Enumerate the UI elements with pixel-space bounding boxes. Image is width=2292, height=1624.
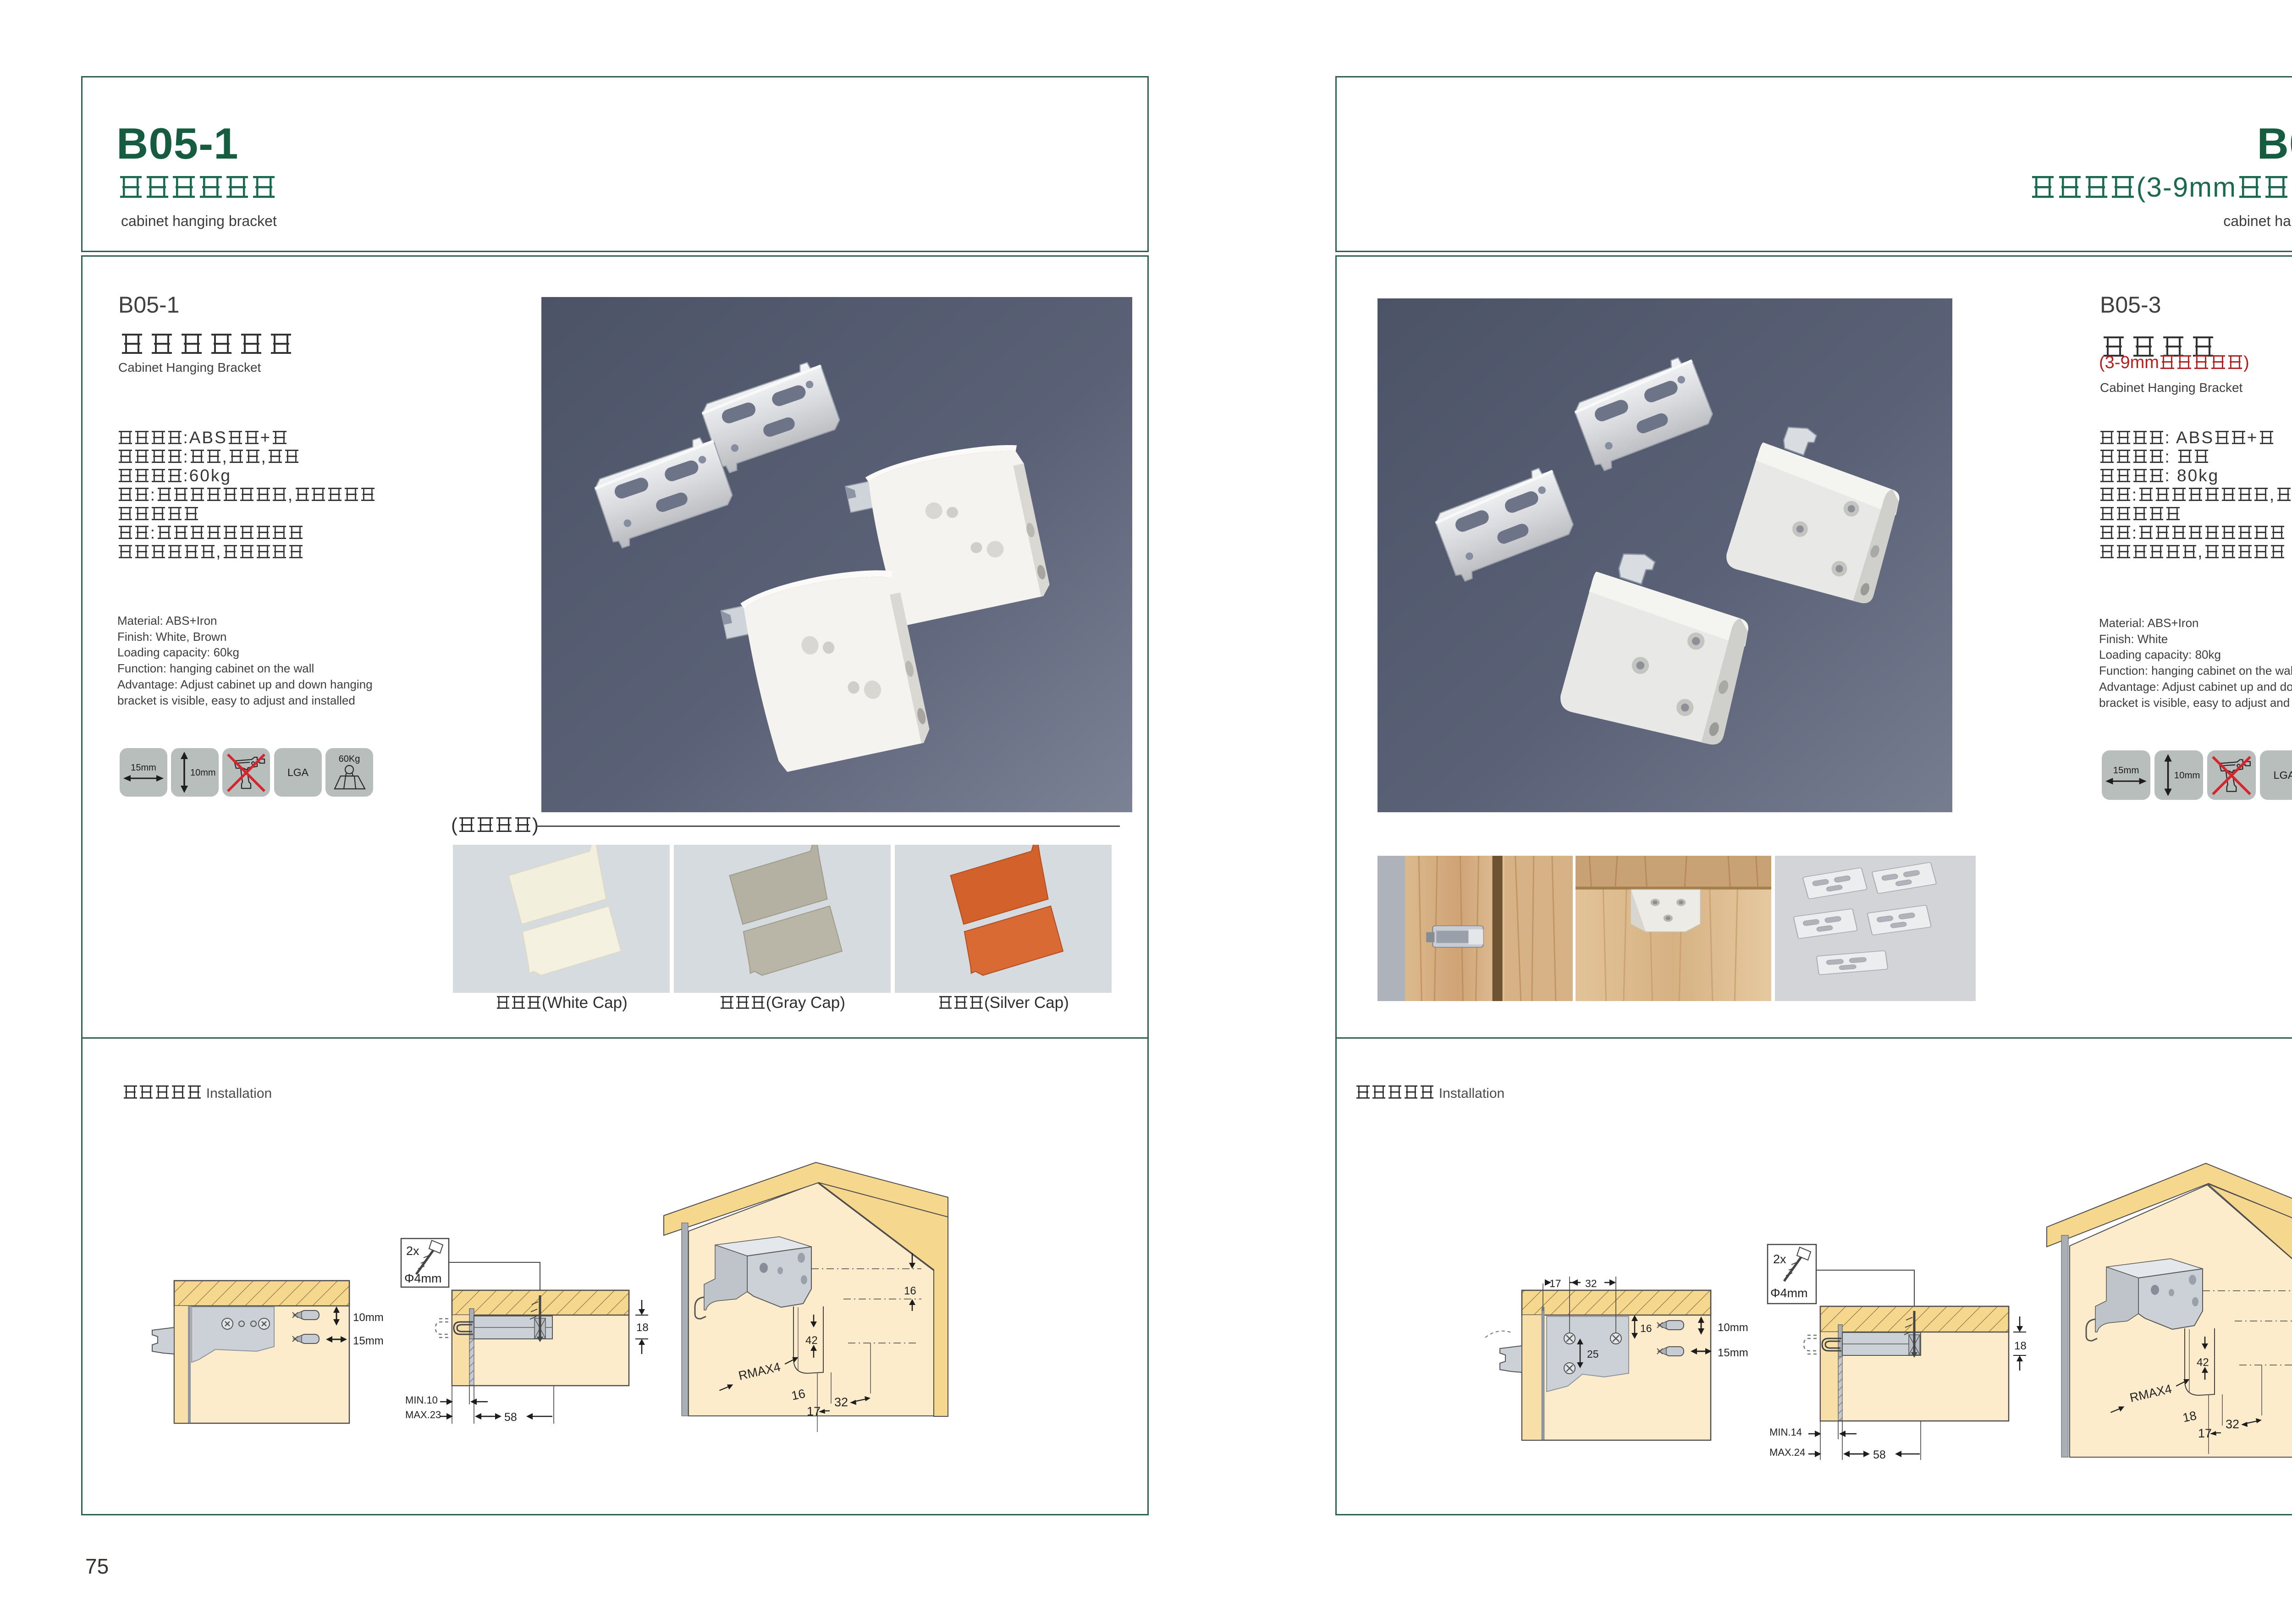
svg-text:LGA: LGA [287,766,309,778]
svg-text:15mm: 15mm [131,763,156,773]
svg-text:10mm: 10mm [1718,1321,1748,1334]
svg-text:MAX.23: MAX.23 [405,1409,441,1420]
svg-text:16: 16 [1640,1322,1652,1334]
svg-text:15mm: 15mm [353,1335,384,1347]
svg-text:18: 18 [2182,1409,2198,1425]
svg-text:60Kg: 60Kg [339,754,360,764]
svg-text:17: 17 [1549,1277,1561,1289]
svg-text:17: 17 [807,1404,821,1418]
svg-text:17: 17 [2198,1426,2212,1440]
svg-text:18: 18 [2014,1340,2027,1352]
svg-text:25: 25 [1587,1348,1599,1360]
svg-text:32: 32 [1585,1277,1597,1289]
svg-text:18: 18 [636,1321,649,1334]
svg-text:10mm: 10mm [2174,771,2200,781]
svg-text:42: 42 [805,1334,818,1347]
svg-text:42: 42 [2197,1356,2209,1369]
svg-text:32: 32 [2226,1417,2239,1431]
svg-text:58: 58 [504,1411,517,1424]
svg-text:16: 16 [790,1387,807,1403]
svg-text:15mm: 15mm [2113,765,2139,776]
svg-text:MAX.24: MAX.24 [1769,1447,1805,1458]
svg-text:10mm: 10mm [190,768,216,778]
svg-text:Φ4mm: Φ4mm [404,1272,442,1285]
svg-text:2x: 2x [1773,1252,1786,1266]
svg-text:16: 16 [904,1285,916,1297]
svg-text:32: 32 [834,1395,848,1409]
svg-text:10mm: 10mm [353,1311,384,1324]
svg-text:MIN.14: MIN.14 [1769,1426,1802,1438]
svg-text:58: 58 [1873,1448,1886,1461]
svg-text:15mm: 15mm [1718,1347,1748,1359]
svg-text:Φ4mm: Φ4mm [1770,1286,1808,1300]
svg-text:MIN.10: MIN.10 [405,1394,438,1406]
svg-text:2x: 2x [406,1244,419,1258]
svg-text:LGA: LGA [2274,769,2292,781]
